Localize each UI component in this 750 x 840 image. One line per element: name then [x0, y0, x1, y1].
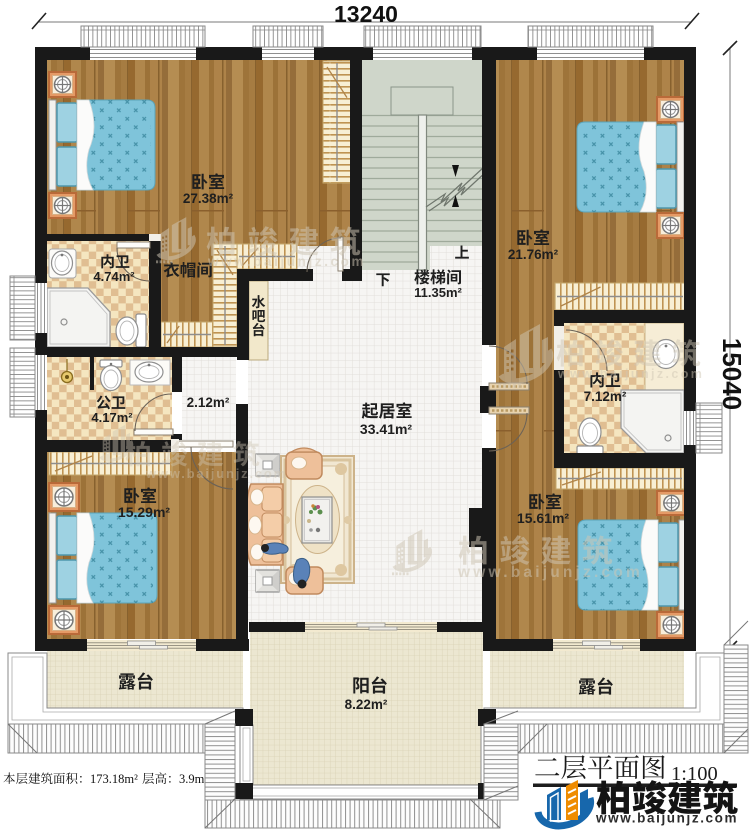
svg-text:27.38m²: 27.38m²	[183, 191, 234, 206]
svg-text:www.baijunjz.com: www.baijunjz.com	[207, 254, 366, 269]
svg-text:15.61m²: 15.61m²	[517, 510, 569, 526]
svg-text:3.9m: 3.9m	[179, 772, 205, 786]
svg-text:www.baijunjz.com: www.baijunjz.com	[145, 466, 287, 481]
svg-text:15.29m²: 15.29m²	[118, 504, 170, 520]
svg-text:4.74m²: 4.74m²	[93, 269, 135, 284]
svg-text:33.41m²: 33.41m²	[360, 421, 412, 437]
svg-text:173.18m²: 173.18m²	[90, 772, 138, 786]
svg-text:11.35m²: 11.35m²	[414, 285, 462, 300]
svg-text:www.baijunjz.com: www.baijunjz.com	[557, 367, 704, 381]
svg-text:www.baijunjz.com: www.baijunjz.com	[595, 811, 738, 826]
svg-text:8.22m²: 8.22m²	[345, 697, 388, 712]
svg-text:15040: 15040	[717, 338, 747, 410]
svg-text:21.76m²: 21.76m²	[508, 247, 559, 262]
svg-text:2.12m²: 2.12m²	[187, 395, 230, 410]
svg-text:13240: 13240	[334, 1, 398, 27]
svg-text:4.17m²: 4.17m²	[91, 410, 133, 425]
svg-text:www.baijunjz.com: www.baijunjz.com	[457, 564, 643, 581]
svg-text:7.12m²: 7.12m²	[584, 389, 627, 404]
